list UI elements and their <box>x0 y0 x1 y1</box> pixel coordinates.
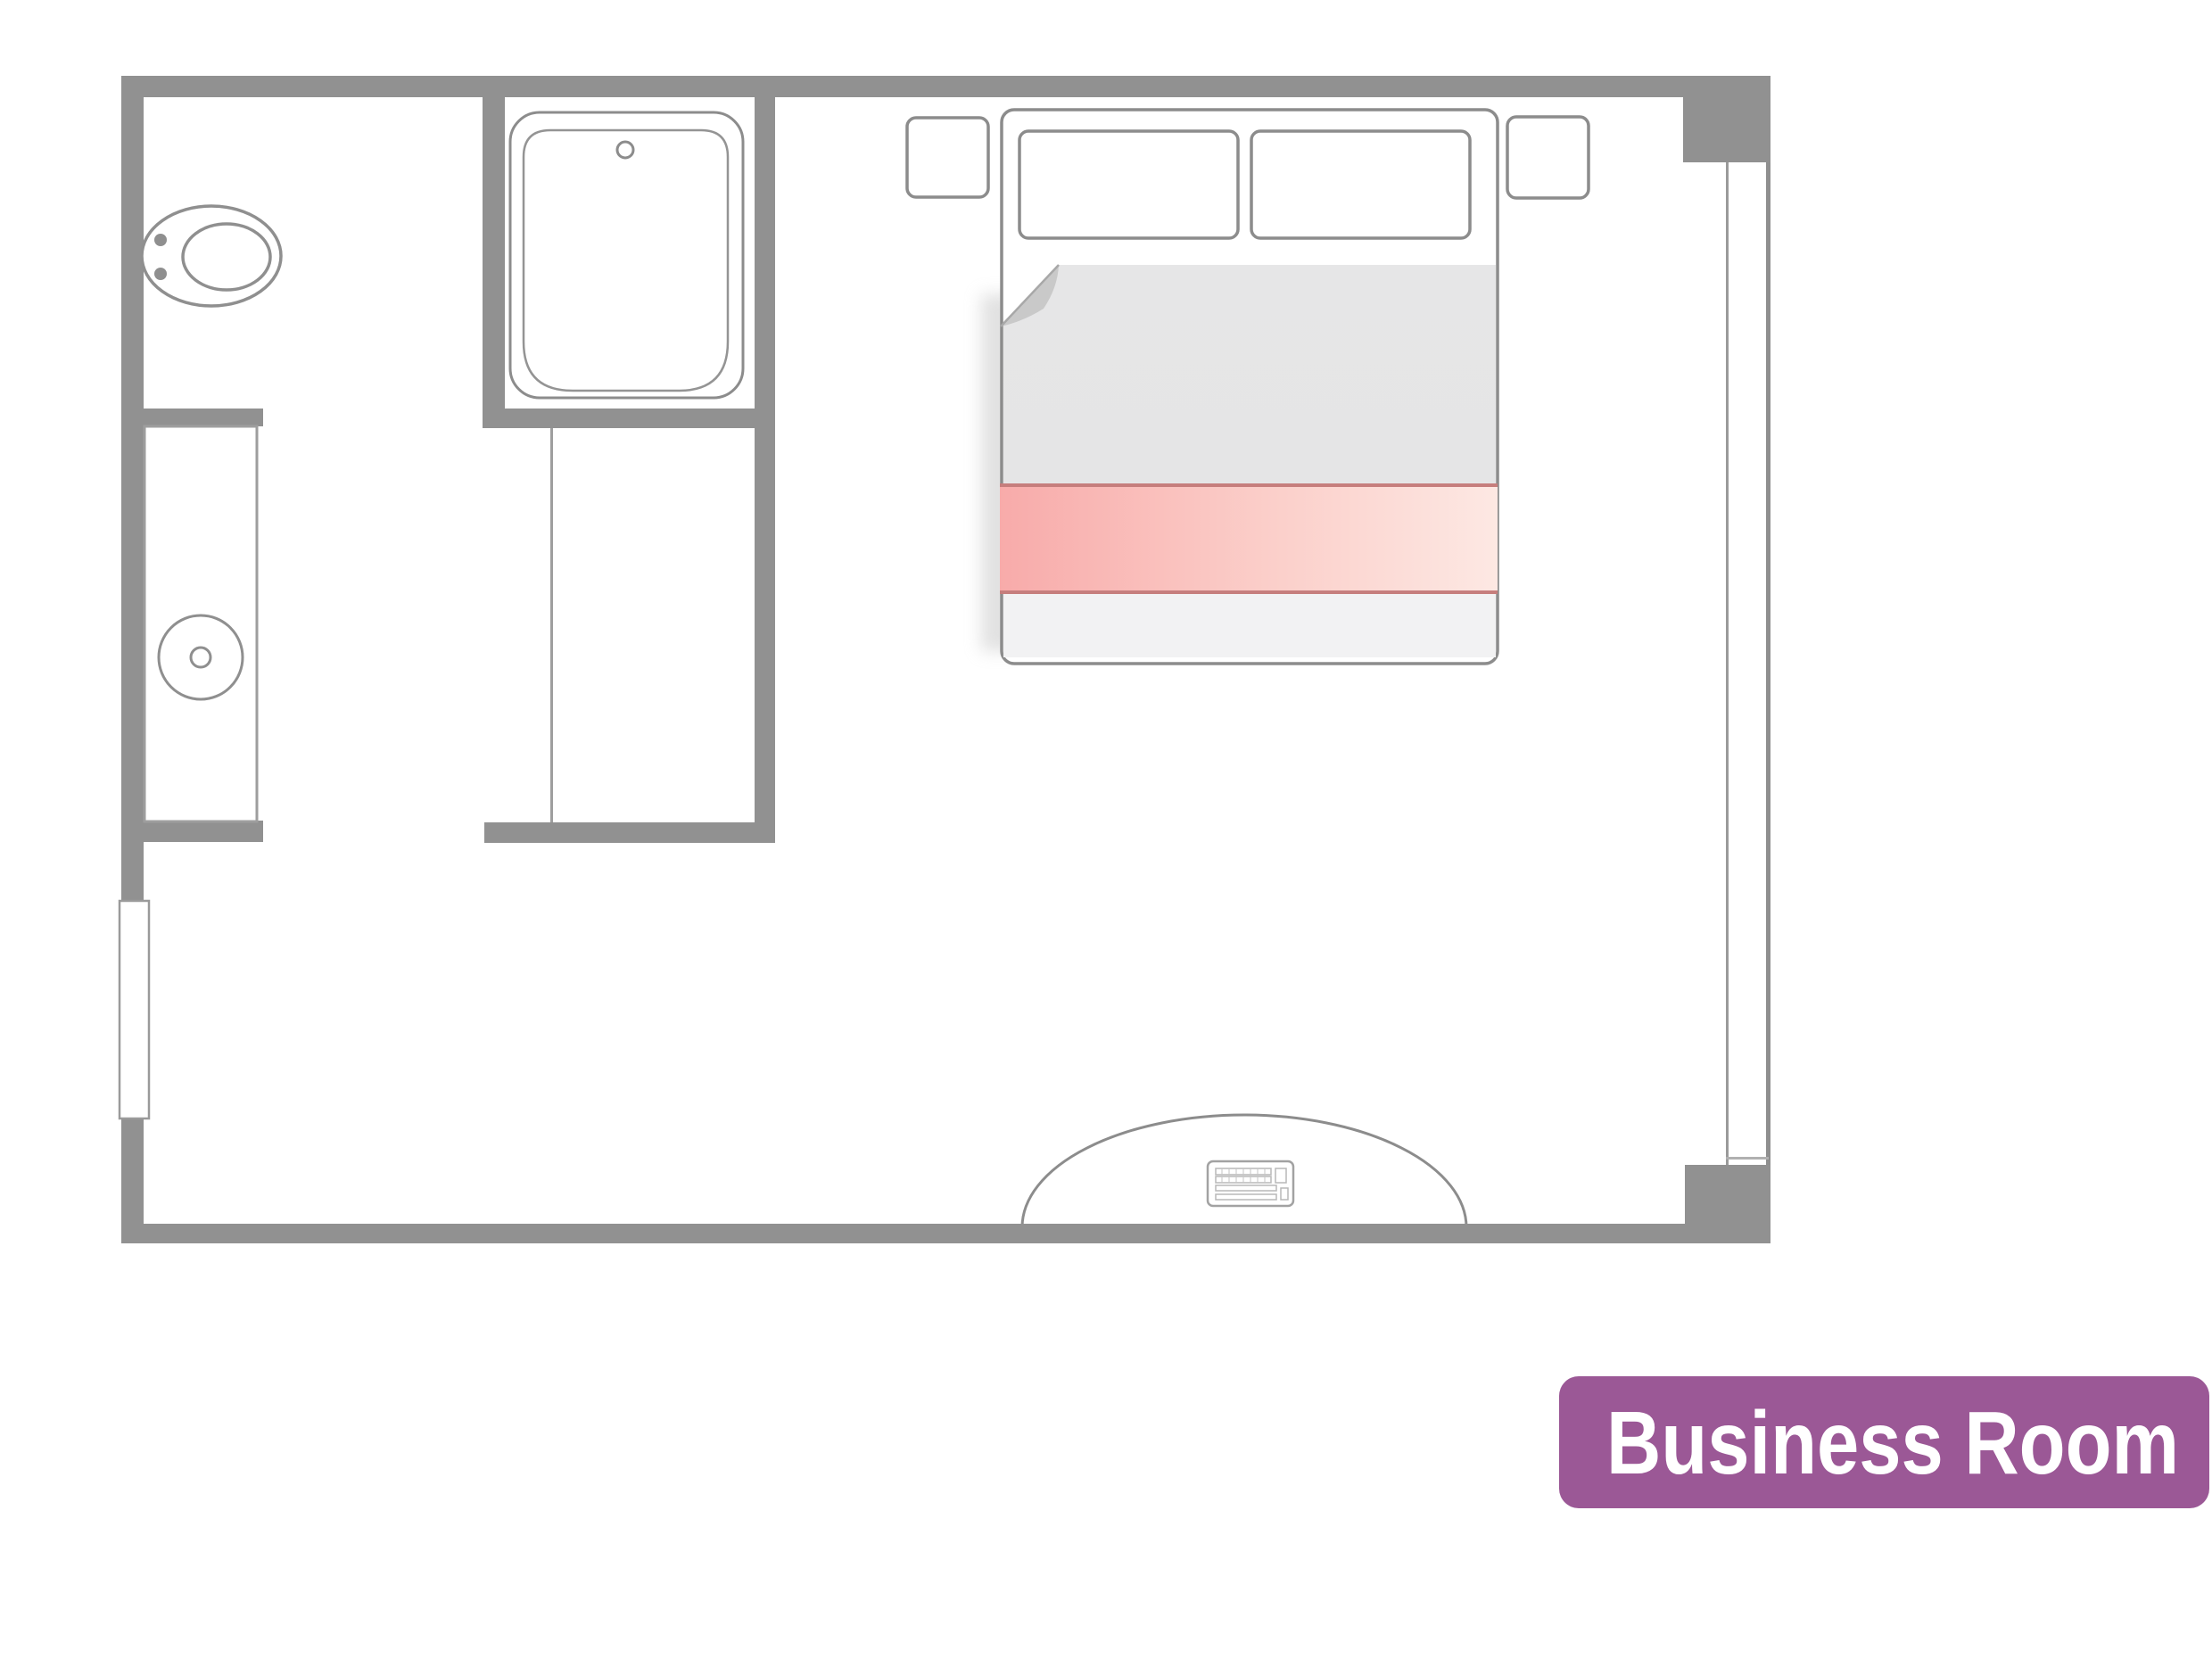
svg-text:Business Room: Business Room <box>1606 1393 2179 1493</box>
